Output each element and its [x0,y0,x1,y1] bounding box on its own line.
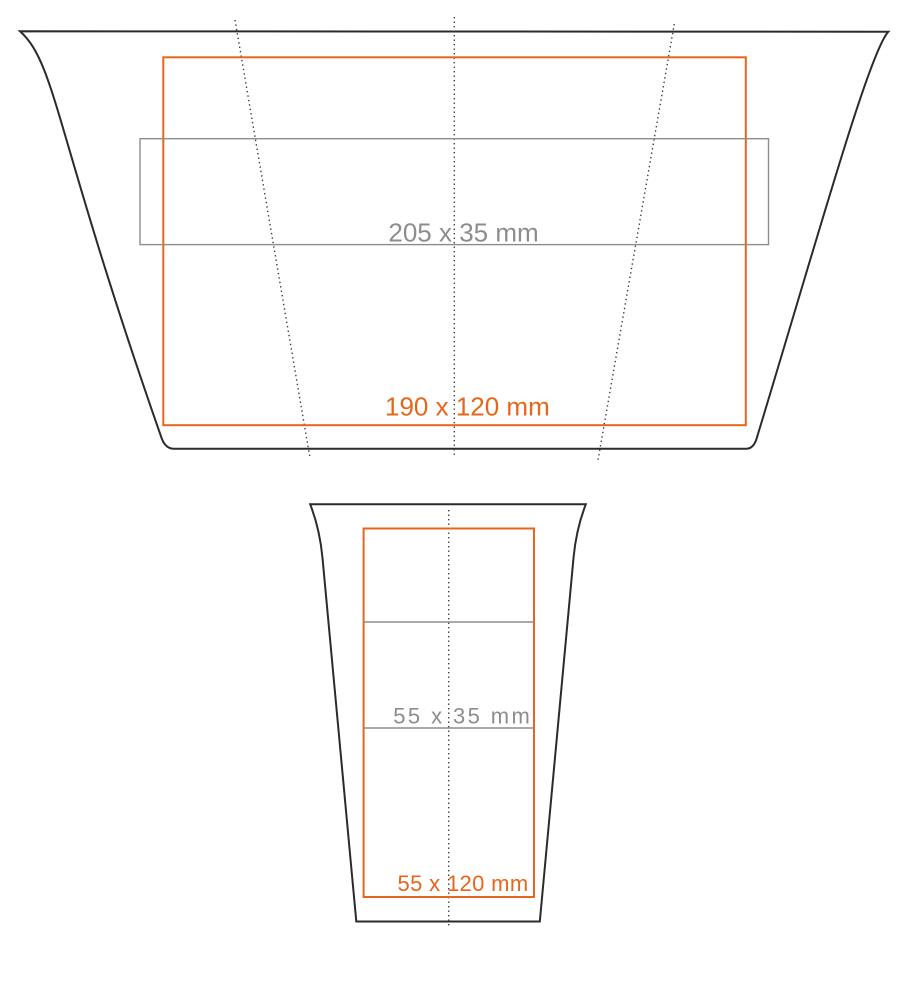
svg-text:55 x 35 mm: 55 x 35 mm [393,704,532,729]
svg-text:205 x 35 mm: 205 x 35 mm [388,217,538,247]
svg-text:190 x 120 mm: 190 x 120 mm [385,392,550,422]
svg-text:55 x 120 mm: 55 x 120 mm [398,871,529,896]
